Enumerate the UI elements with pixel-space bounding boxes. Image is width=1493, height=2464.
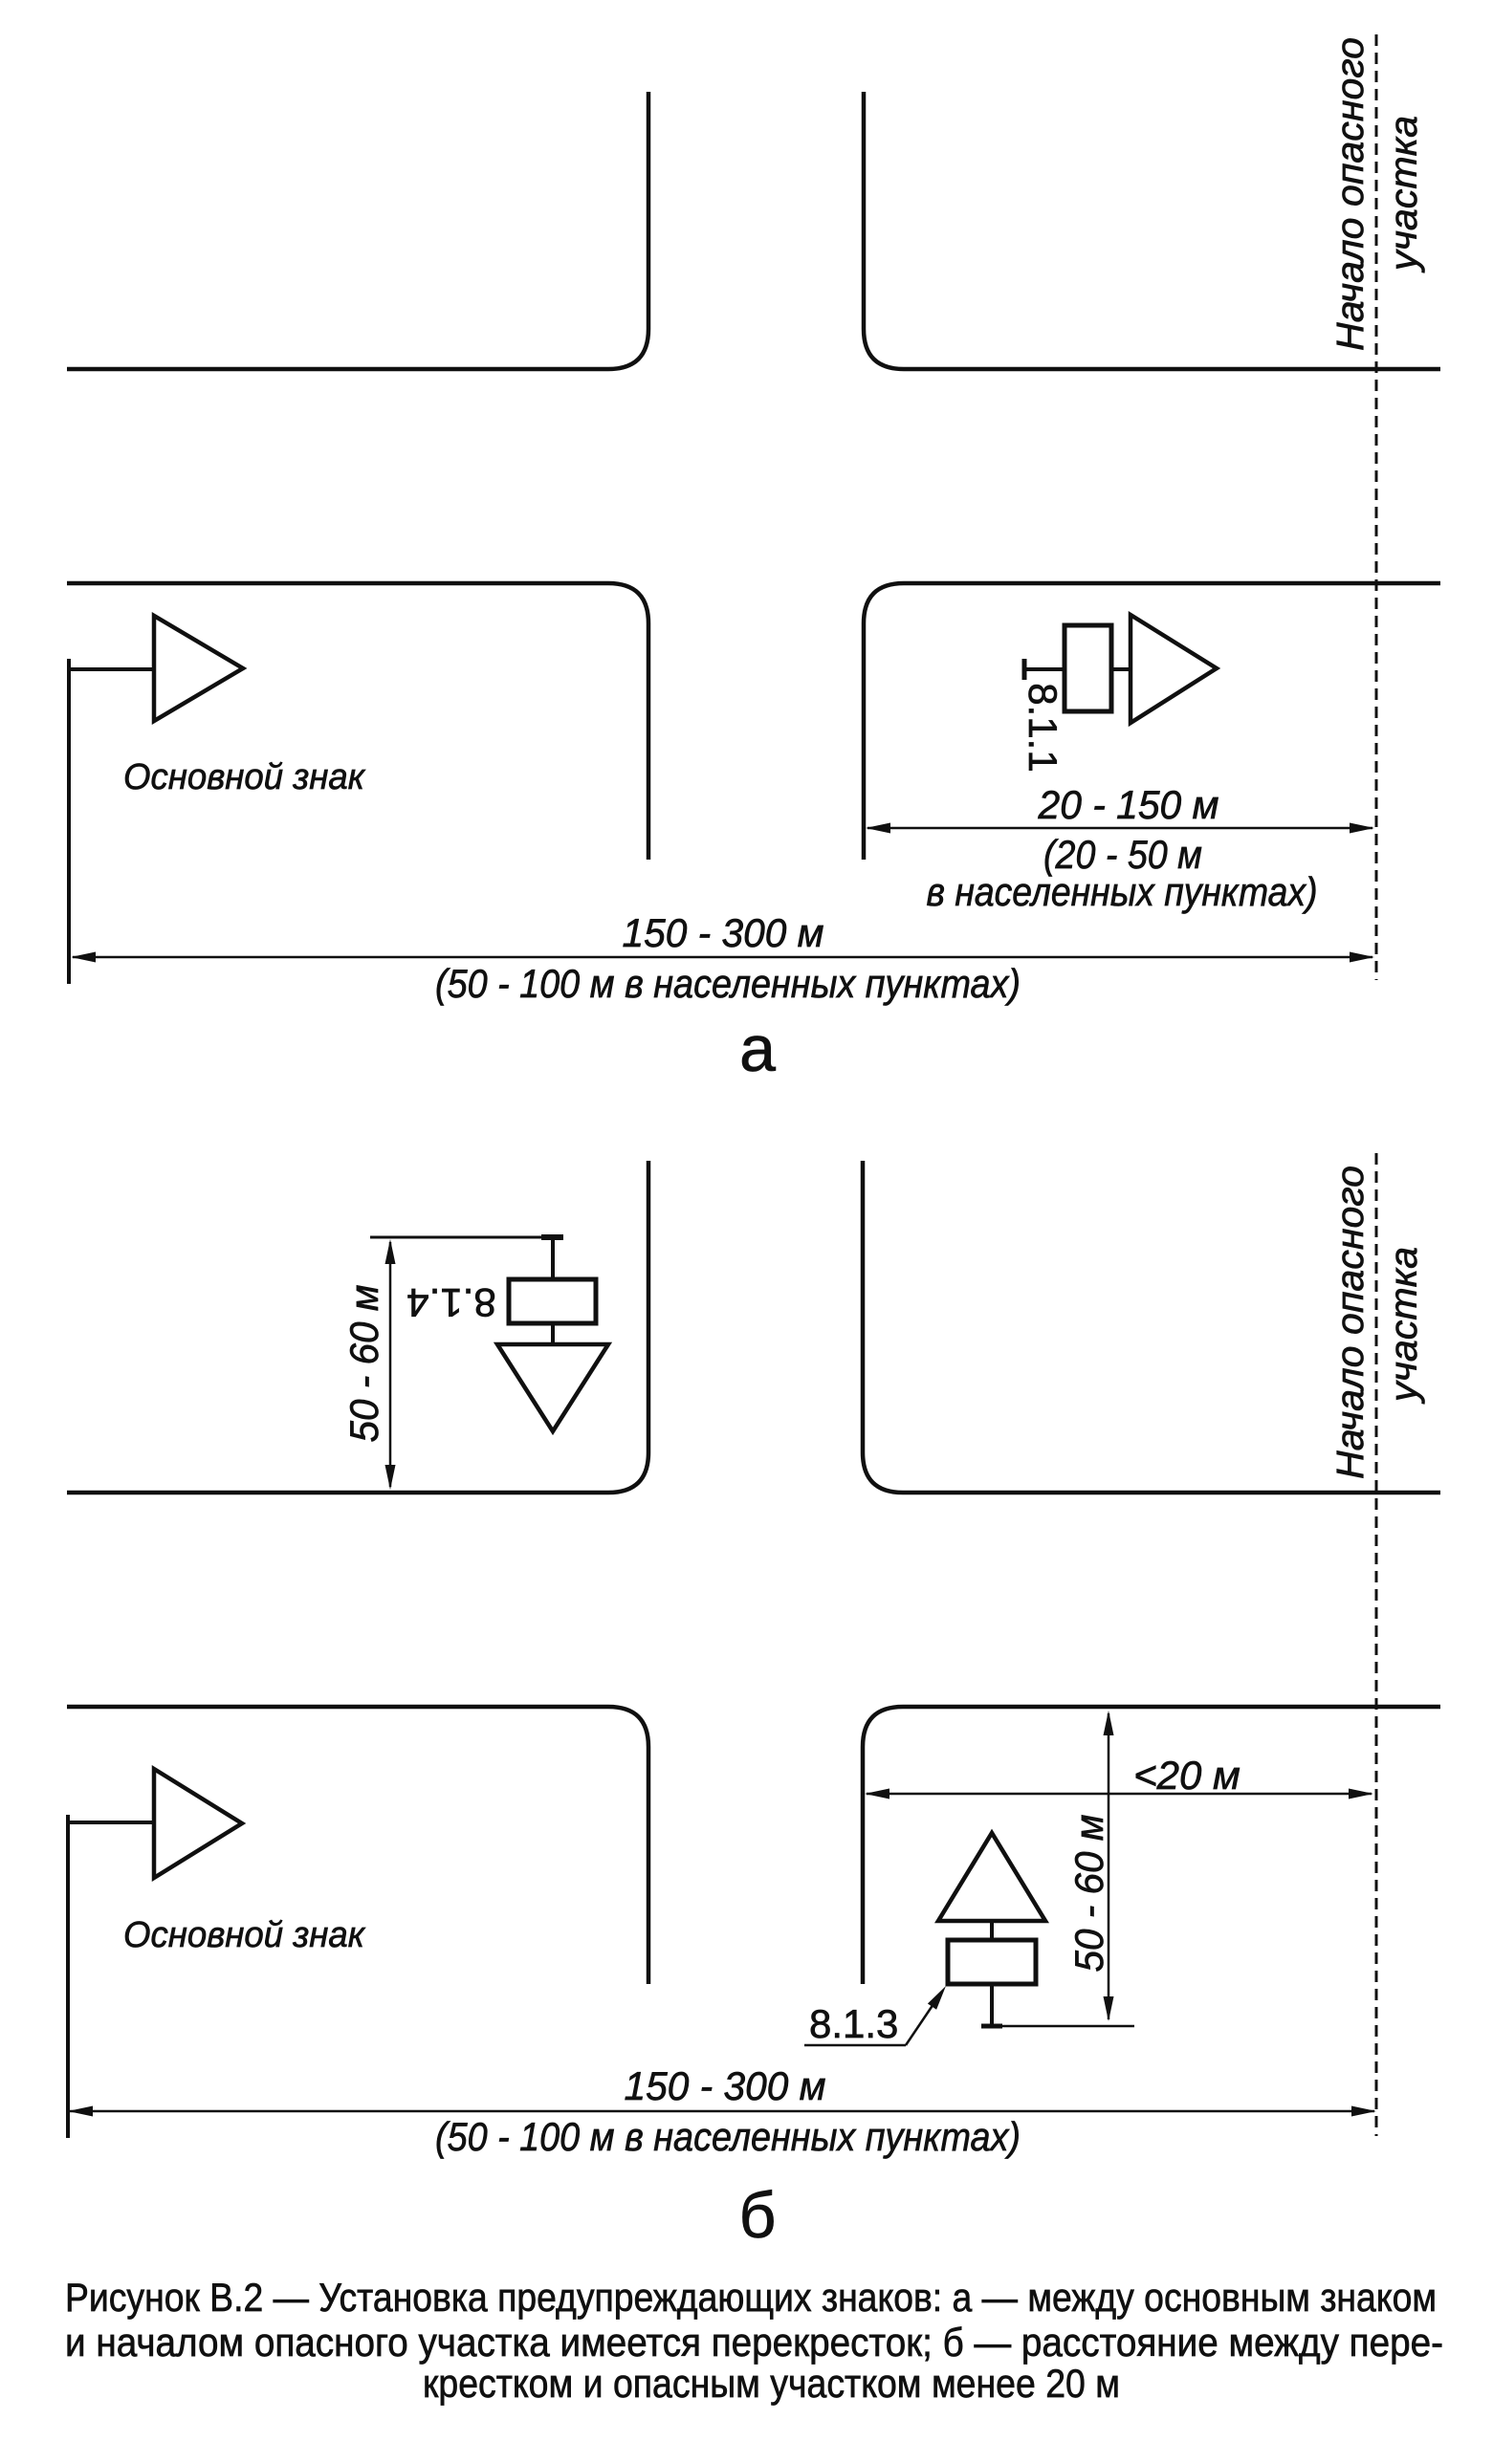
svg-text:8.1.4: 8.1.4 [406, 1280, 495, 1325]
svg-text:и началом опасного участка име: и началом опасного участка имеется перек… [65, 2320, 1443, 2365]
svg-text:(50 - 100 м в населенных пункт: (50 - 100 м в населенных пунктах) [435, 961, 1021, 1006]
svg-text:б: б [739, 2179, 777, 2252]
svg-text:<20 м: <20 м [1133, 1753, 1241, 1798]
svg-text:150 - 300 м: 150 - 300 м [625, 2063, 826, 2108]
svg-text:в населенных пунктах): в населенных пунктах) [927, 869, 1318, 914]
svg-text:20 - 150 м: 20 - 150 м [1038, 782, 1219, 827]
svg-text:участка: участка [1383, 116, 1425, 273]
svg-text:(50 - 100 м в населенных пункт: (50 - 100 м в населенных пунктах) [435, 2114, 1021, 2159]
svg-text:участка: участка [1383, 1247, 1425, 1405]
svg-text:Основной знак: Основной знак [123, 757, 366, 797]
svg-text:крестком и опасным участком ме: крестком и опасным участком менее 20 м [423, 2361, 1120, 2406]
svg-text:150 - 300 м: 150 - 300 м [623, 910, 824, 955]
svg-text:Основной знак: Основной знак [123, 1915, 366, 1955]
svg-text:8.1.3: 8.1.3 [809, 2001, 898, 2046]
svg-text:8.1.1: 8.1.1 [1021, 683, 1065, 772]
svg-text:50 - 60 м: 50 - 60 м [1066, 1815, 1111, 1973]
svg-text:50 - 60 м: 50 - 60 м [341, 1285, 386, 1443]
svg-text:Начало опасного: Начало опасного [1329, 37, 1372, 351]
svg-text:Рисунок В.2 — Установка предуп: Рисунок В.2 — Установка предупреждающих … [65, 2275, 1437, 2320]
svg-text:а: а [739, 1013, 776, 1085]
svg-text:Начало опасного: Начало опасного [1329, 1166, 1372, 1479]
